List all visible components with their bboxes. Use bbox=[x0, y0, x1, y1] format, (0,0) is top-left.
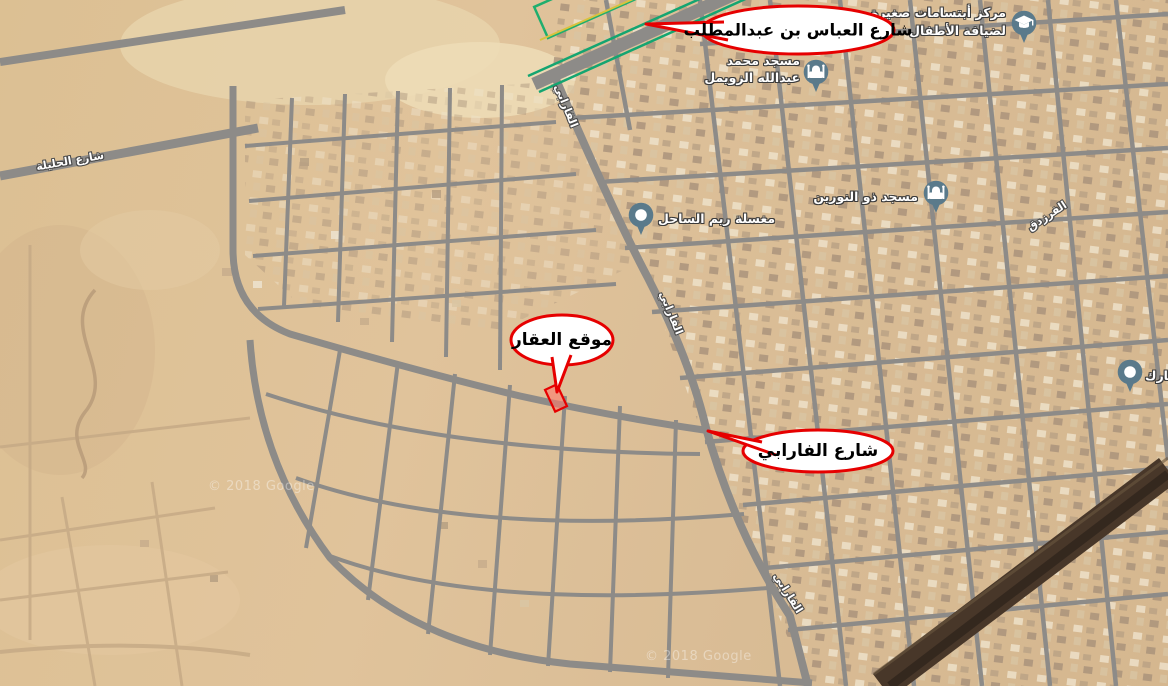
callout-abbas-street-label: شارع العباس بن عبدالمطلب bbox=[683, 21, 912, 40]
callout-property-location: موقع العقار bbox=[505, 312, 620, 404]
poi-pin-mosque-zuwaimel[interactable] bbox=[803, 59, 829, 93]
poi-pin-mosque-nurayn[interactable] bbox=[923, 180, 949, 214]
satellite-map-canvas[interactable]: شارع الحليلة الفارابي الفارابي الفارابي … bbox=[0, 0, 1168, 686]
poi-label-mosque-nurayn: مسجد ذو النورين bbox=[813, 189, 918, 204]
google-watermark: © 2018 Google bbox=[208, 479, 315, 494]
place-icon bbox=[635, 209, 647, 221]
poi-pin-smiles-center[interactable] bbox=[1011, 10, 1037, 44]
poi-label-laundry-reem: مغسلة ريم الساحل bbox=[658, 211, 775, 226]
poi-label-smiles-line2: لضيافة الأطفال bbox=[909, 23, 1006, 38]
poi-pin-laundry-reem[interactable] bbox=[628, 202, 654, 236]
poi-pin-bumohammed[interactable] bbox=[1117, 359, 1143, 393]
poi-label-bumohammed: بومحمد المبارك bbox=[1145, 368, 1168, 383]
poi-label-mosque-zuwaimel-line2: عبدالله الزويمل bbox=[704, 70, 800, 85]
callout-farabi-street-label: شارع الفارابي bbox=[758, 441, 878, 461]
place-icon bbox=[1124, 366, 1136, 378]
callout-abbas-street: شارع العباس بن عبدالمطلب bbox=[638, 2, 898, 58]
callout-farabi-street: شارع الفارابي bbox=[700, 424, 895, 476]
callout-property-location-label: موقع العقار bbox=[512, 330, 612, 350]
callout-bubble bbox=[505, 312, 620, 404]
google-watermark: © 2018 Google bbox=[645, 649, 752, 664]
